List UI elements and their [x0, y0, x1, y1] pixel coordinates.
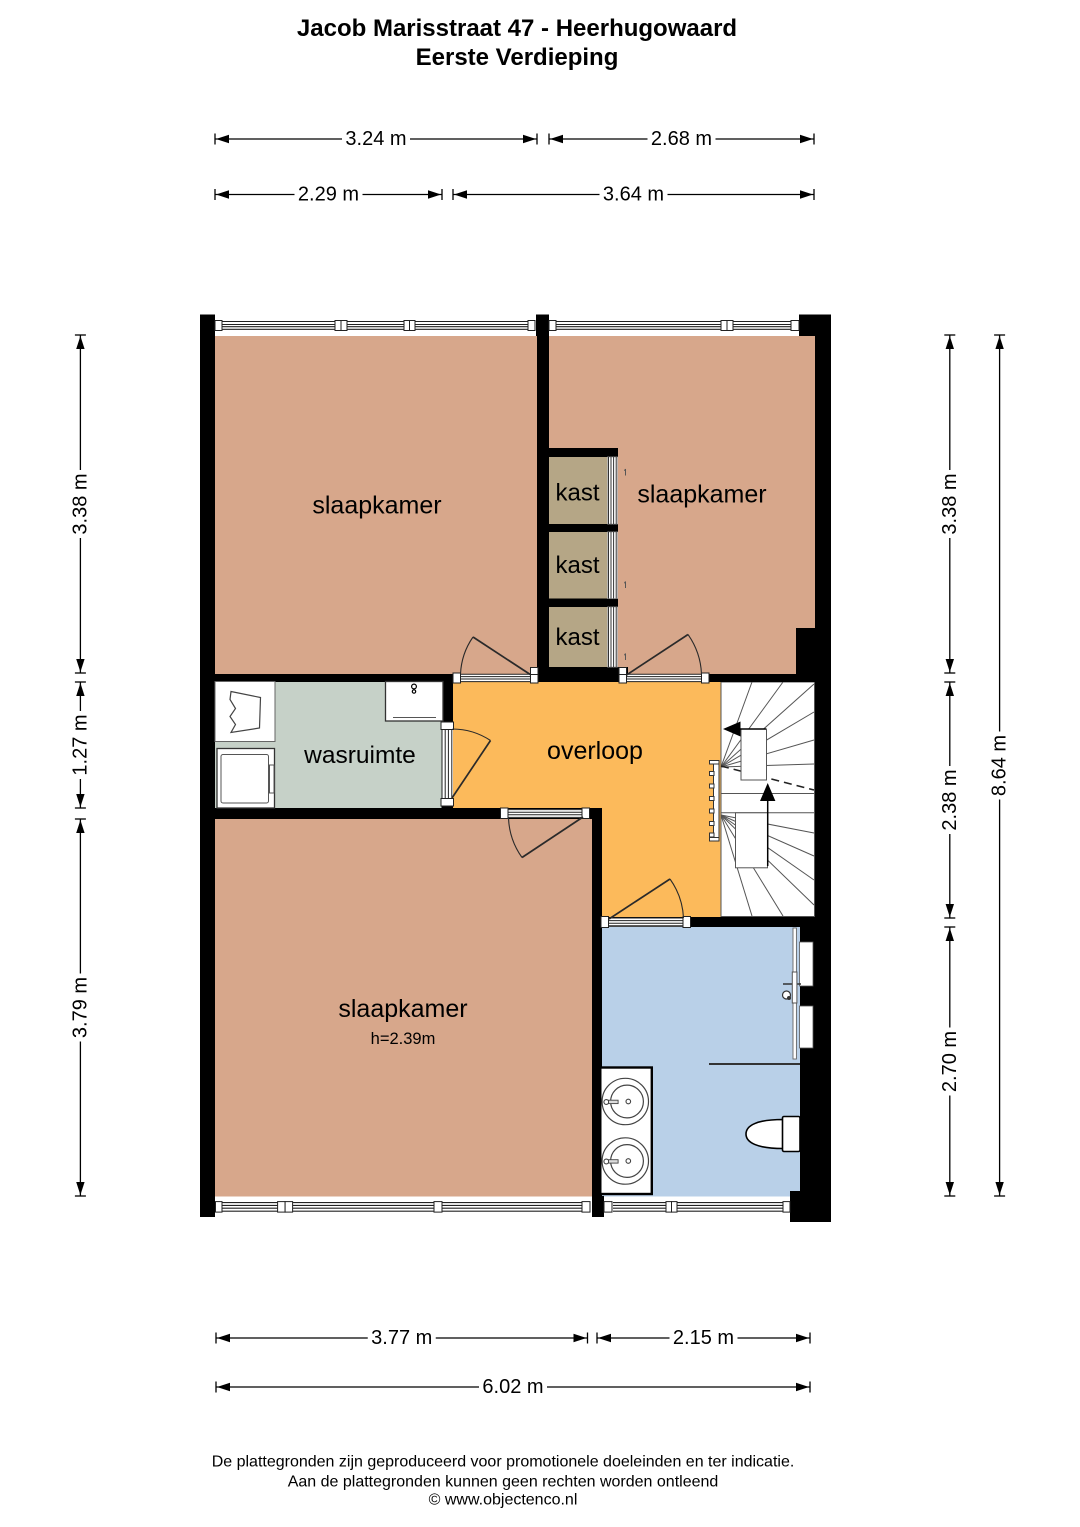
svg-text:3.24 m: 3.24 m: [345, 128, 406, 150]
svg-text:2.70 m: 2.70 m: [939, 1031, 961, 1092]
svg-text:© www.objectenco.nl: © www.objectenco.nl: [429, 1492, 578, 1509]
svg-text:2.68 m: 2.68 m: [651, 128, 712, 150]
svg-text:6.02 m: 6.02 m: [482, 1376, 543, 1398]
svg-text:2.38 m: 2.38 m: [939, 769, 961, 830]
svg-text:3.38 m: 3.38 m: [69, 473, 91, 534]
svg-text:slaapkamer: slaapkamer: [338, 995, 467, 1023]
svg-text:3.77 m: 3.77 m: [371, 1327, 432, 1349]
svg-text:3.79 m: 3.79 m: [69, 977, 91, 1038]
svg-text:overloop: overloop: [547, 737, 643, 765]
svg-text:3.38 m: 3.38 m: [939, 473, 961, 534]
svg-text:3.64 m: 3.64 m: [603, 184, 664, 206]
svg-text:h=2.39m: h=2.39m: [371, 1030, 436, 1048]
svg-text:slaapkamer: slaapkamer: [312, 492, 441, 520]
svg-text:slaapkamer: slaapkamer: [637, 481, 766, 509]
svg-text:Aan de plattegronden kunnen ge: Aan de plattegronden kunnen geen rechten…: [288, 1474, 719, 1491]
svg-text:kast: kast: [555, 552, 599, 579]
svg-text:2.29 m: 2.29 m: [298, 184, 359, 206]
svg-text:1.27 m: 1.27 m: [69, 714, 91, 775]
svg-text:kast: kast: [555, 624, 599, 651]
svg-text:Eerste Verdieping: Eerste Verdieping: [416, 44, 619, 71]
svg-text:De plattegronden zijn geproduc: De plattegronden zijn geproduceerd voor …: [212, 1454, 795, 1471]
svg-text:2.15 m: 2.15 m: [673, 1327, 734, 1349]
svg-text:8.64 m: 8.64 m: [989, 735, 1011, 796]
svg-text:wasruimte: wasruimte: [303, 742, 416, 769]
svg-text:kast: kast: [555, 480, 599, 507]
svg-text:Jacob Marisstraat 47 - Heerhug: Jacob Marisstraat 47 - Heerhugowaard: [297, 15, 737, 42]
